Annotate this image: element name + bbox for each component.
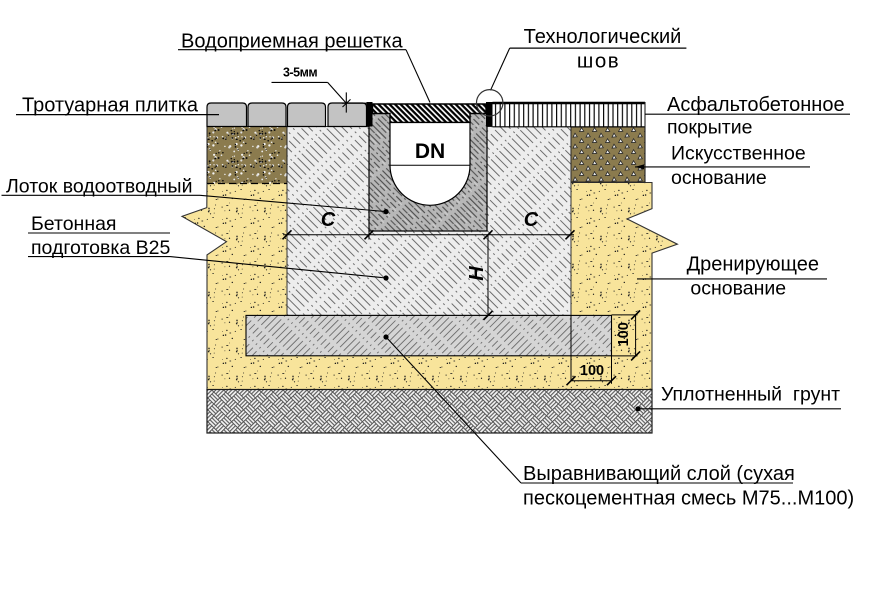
svg-text:Уплотненный грунт: Уплотненный грунт <box>661 384 840 406</box>
svg-text:Дренирующее: Дренирующее <box>687 253 819 275</box>
svg-text:пескоцементная смесь М75...М10: пескоцементная смесь М75...М100) <box>523 488 854 510</box>
svg-text:Асфальтобетонное: Асфальтобетонное <box>667 94 845 116</box>
svg-text:Бетонная: Бетонная <box>31 213 117 235</box>
svg-text:Лоток водоотводный: Лоток водоотводный <box>6 175 192 197</box>
svg-text:Технологический: Технологический <box>524 26 682 48</box>
svg-text:100: 100 <box>580 363 604 379</box>
svg-text:100: 100 <box>616 322 632 346</box>
svg-text:подготовка В25: подготовка В25 <box>31 237 170 259</box>
svg-text:3-5мм: 3-5мм <box>283 66 317 80</box>
svg-text:Выравнивающий слой (сухая: Выравнивающий слой (сухая <box>523 463 795 485</box>
svg-text:H: H <box>466 266 488 281</box>
svg-text:покрытие: покрытие <box>667 117 752 139</box>
svg-text:шов: шов <box>577 49 620 72</box>
svg-text:C: C <box>524 209 539 231</box>
svg-text:C: C <box>321 209 336 231</box>
svg-text:Тротуарная плитка: Тротуарная плитка <box>22 95 199 117</box>
svg-text:основание: основание <box>671 167 767 189</box>
svg-text:Искусственное: Искусственное <box>671 143 806 165</box>
svg-text:основание: основание <box>690 277 786 299</box>
svg-text:DN: DN <box>415 140 445 163</box>
